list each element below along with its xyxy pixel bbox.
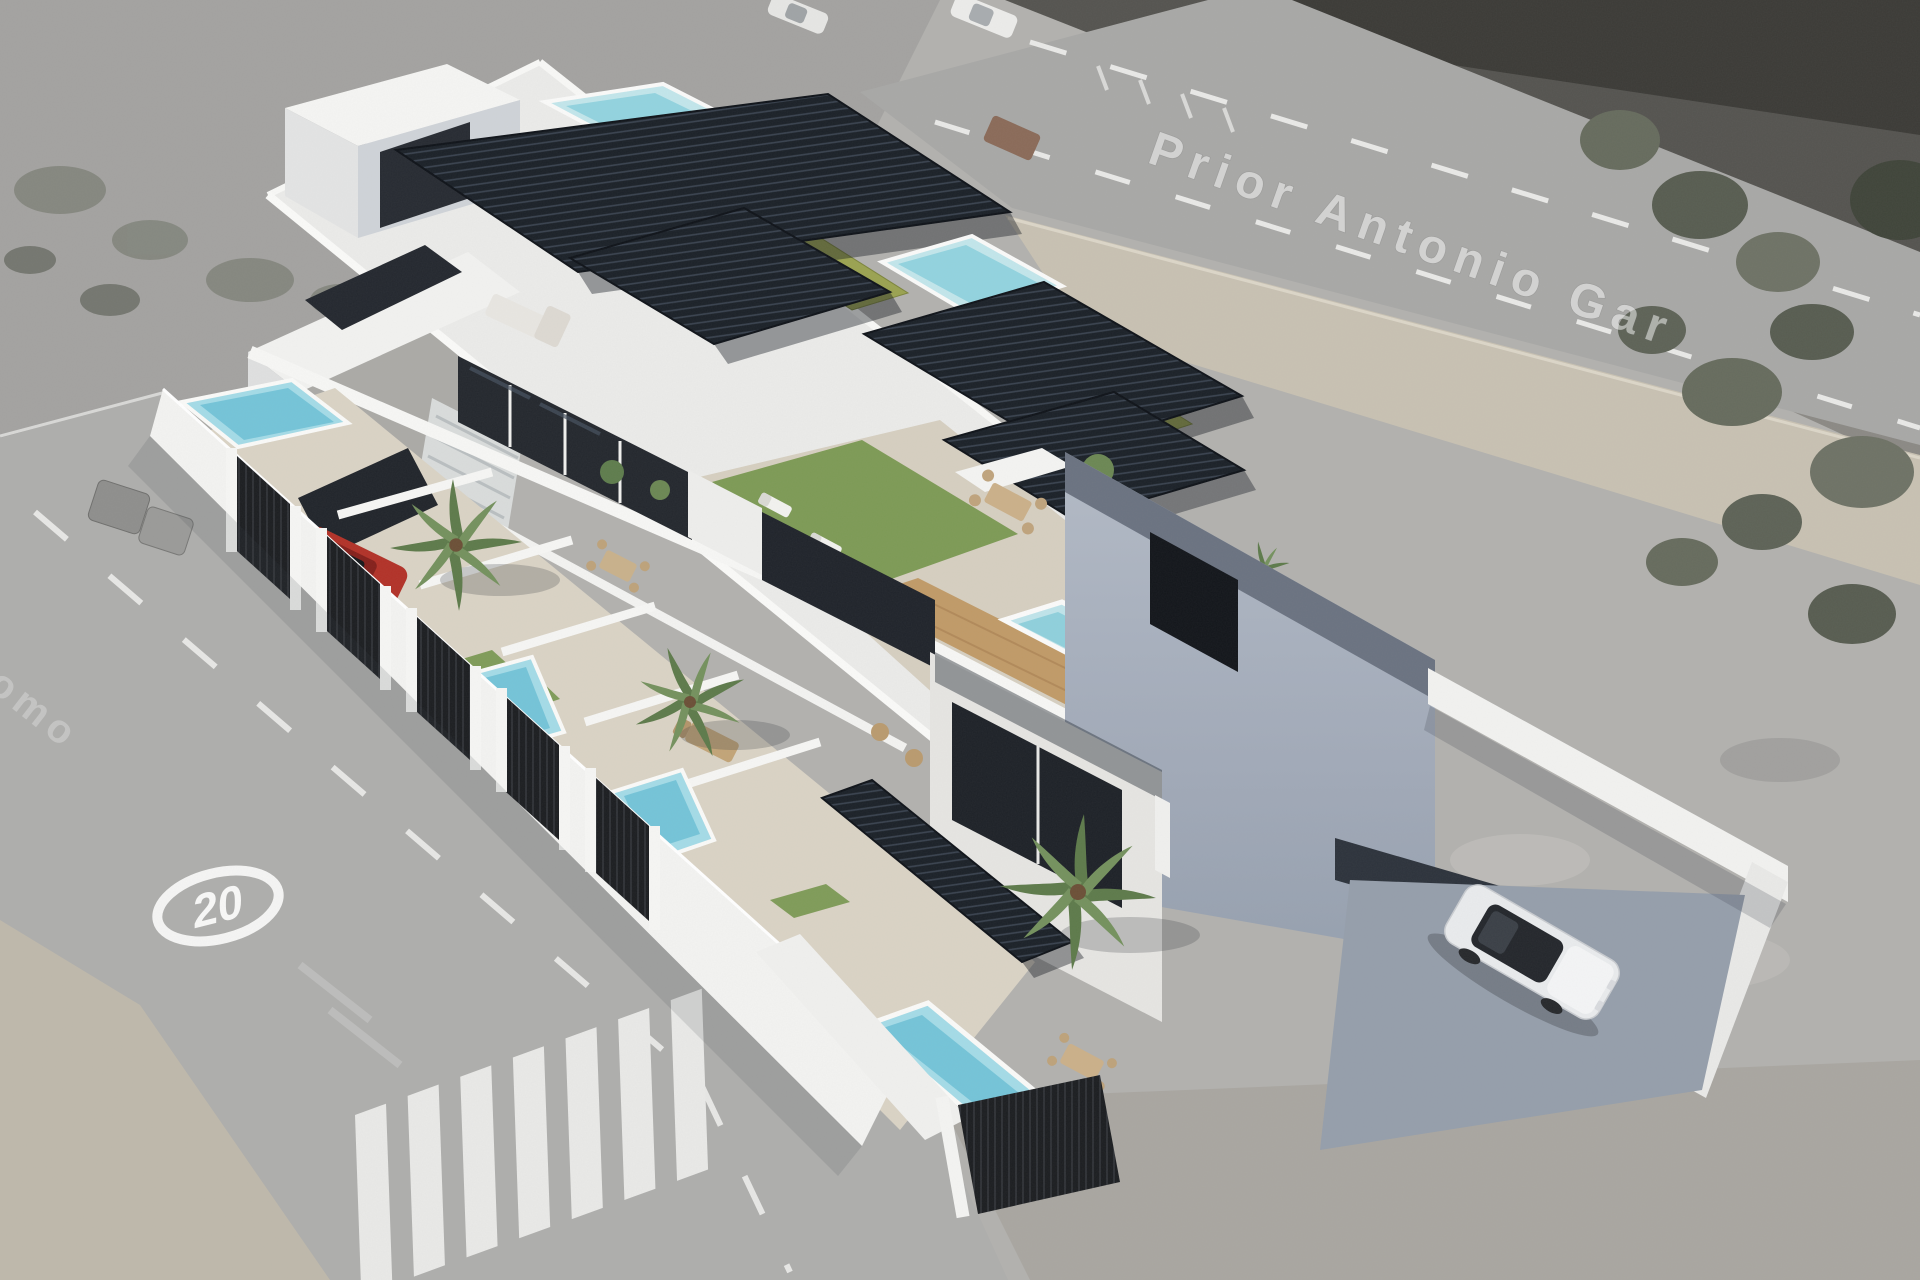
aerial-render-scene: 20 Prior Antonio Gar omo: [0, 0, 1920, 1280]
photo-grain-overlay: [0, 0, 1920, 1280]
